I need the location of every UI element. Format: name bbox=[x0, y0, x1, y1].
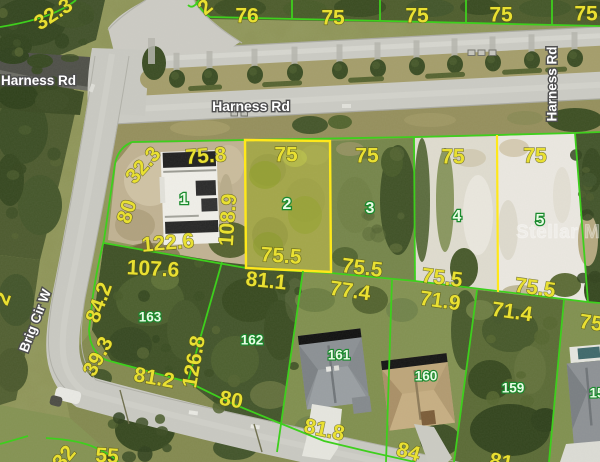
svg-text:Stellar MLS: Stellar MLS bbox=[516, 222, 600, 243]
svg-text:3: 3 bbox=[366, 200, 375, 217]
svg-text:159: 159 bbox=[502, 381, 525, 396]
svg-text:55: 55 bbox=[95, 444, 120, 462]
svg-text:1: 1 bbox=[180, 191, 189, 208]
svg-text:81.1: 81.1 bbox=[245, 267, 288, 294]
svg-text:5: 5 bbox=[536, 212, 545, 229]
svg-text:161: 161 bbox=[328, 348, 351, 363]
svg-text:Harness Rd: Harness Rd bbox=[1, 73, 76, 88]
svg-text:Harness Rd: Harness Rd bbox=[212, 98, 290, 114]
svg-text:75: 75 bbox=[321, 7, 345, 30]
svg-text:4: 4 bbox=[453, 208, 462, 225]
svg-text:163: 163 bbox=[139, 310, 162, 325]
svg-text:75: 75 bbox=[441, 146, 465, 169]
svg-text:75: 75 bbox=[405, 5, 429, 28]
svg-text:122.6: 122.6 bbox=[141, 229, 195, 256]
svg-text:75: 75 bbox=[578, 310, 600, 336]
svg-text:76: 76 bbox=[235, 5, 258, 28]
svg-text:80: 80 bbox=[218, 387, 245, 414]
svg-text:162: 162 bbox=[241, 333, 264, 348]
svg-text:15: 15 bbox=[589, 386, 600, 401]
svg-text:107.6: 107.6 bbox=[126, 256, 180, 282]
svg-text:75: 75 bbox=[574, 3, 598, 26]
svg-text:2: 2 bbox=[283, 196, 292, 213]
svg-text:Harness Rd: Harness Rd bbox=[545, 46, 560, 121]
svg-text:160: 160 bbox=[415, 369, 438, 384]
svg-text:75.5: 75.5 bbox=[260, 243, 303, 269]
svg-text:75: 75 bbox=[489, 4, 513, 27]
svg-text:75: 75 bbox=[274, 144, 298, 167]
svg-text:75: 75 bbox=[523, 145, 547, 168]
svg-text:75: 75 bbox=[355, 145, 379, 168]
svg-text:108.9: 108.9 bbox=[215, 193, 242, 247]
svg-text:75.8: 75.8 bbox=[185, 143, 228, 169]
